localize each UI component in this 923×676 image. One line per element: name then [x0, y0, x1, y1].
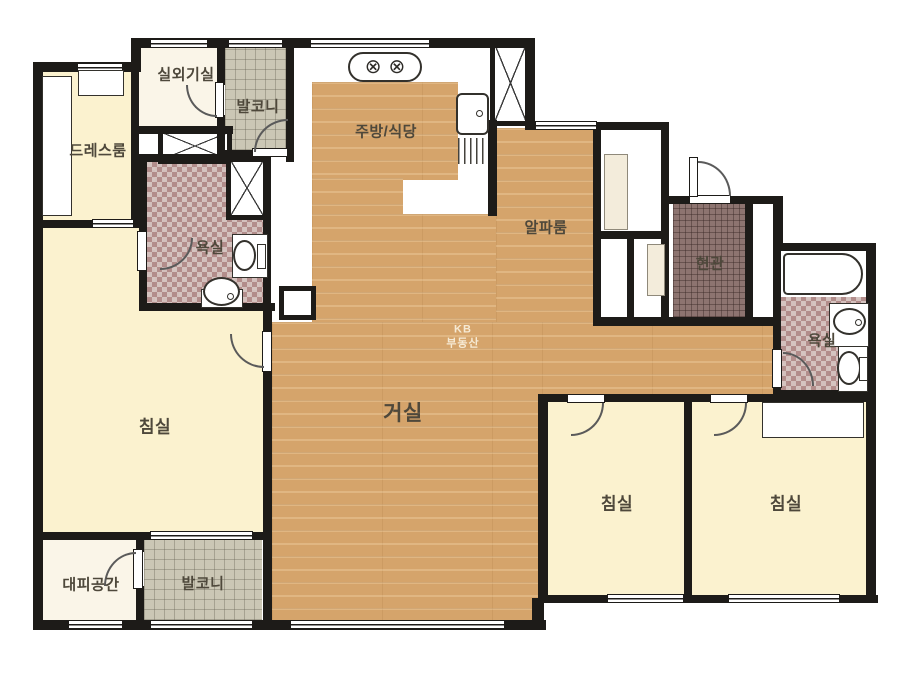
kitchen-wood-floor3 [312, 214, 496, 322]
closet [762, 402, 864, 438]
wall [684, 400, 692, 598]
kb-watermark-line1: KB [446, 323, 479, 337]
window [150, 39, 208, 48]
living-room-floor [272, 322, 542, 620]
window [607, 594, 684, 603]
room-label-kitchen-dining: 주방/식당 [355, 121, 417, 142]
wall [538, 394, 548, 600]
window [290, 620, 505, 629]
wall [525, 38, 535, 130]
room-label-evacuation-space: 대피공간 [62, 574, 119, 595]
window [728, 594, 840, 603]
floor-plan: ⊗ ⊗ 실외기실 발코니 드레스룸 욕실 주방/식당 알파룸 현관 욕실 침실 … [0, 0, 923, 676]
wall [773, 243, 874, 251]
burner-icon: ⊗ [365, 57, 382, 77]
room-label-outdoor-unit: 실외기실 [157, 64, 214, 85]
closet [42, 76, 72, 216]
wall [661, 122, 669, 204]
room-label-living-room: 거실 [383, 397, 423, 427]
wall [488, 120, 497, 216]
faucet-dot-icon [227, 293, 234, 300]
door-leaf [137, 231, 147, 271]
room-label-balcony-top: 발코니 [237, 96, 280, 117]
room-label-bedroom-left: 침실 [139, 413, 171, 438]
toilet-icon [837, 351, 861, 385]
window [150, 620, 253, 629]
window [68, 620, 123, 629]
room-label-bath-left: 욕실 [196, 237, 225, 258]
toilet-icon [233, 240, 256, 271]
wall [136, 586, 144, 622]
kitchen-wood-floor2 [312, 178, 403, 216]
cabinet [647, 244, 665, 296]
wall [139, 154, 147, 234]
window [150, 531, 253, 540]
wall [593, 122, 601, 326]
faucet-dot-icon [855, 319, 862, 326]
kb-watermark: KB 부동산 [446, 323, 479, 351]
washbasin-icon [203, 277, 240, 306]
wall [627, 239, 634, 317]
kitchen-sink-icon [456, 93, 489, 135]
wall [263, 154, 271, 311]
kb-watermark-line2: 부동산 [446, 337, 479, 351]
stove-icon: ⊗ ⊗ [348, 52, 422, 82]
room-label-alpha-room: 알파룸 [525, 217, 568, 238]
wall [532, 598, 544, 630]
duct-shaft-icon [226, 156, 268, 220]
room-label-entrance: 현관 [696, 253, 725, 274]
door-arc [698, 161, 731, 196]
room-label-bedroom-right: 침실 [770, 490, 802, 515]
closet [78, 70, 124, 96]
wall [217, 42, 225, 85]
wall [601, 231, 661, 239]
room-label-bath-right: 욕실 [808, 330, 837, 351]
room-label-balcony-bottom: 발코니 [182, 573, 225, 594]
wall [603, 394, 713, 402]
burner-icon: ⊗ [389, 57, 406, 77]
door-leaf [710, 394, 748, 403]
window [535, 121, 597, 130]
window [228, 39, 283, 48]
room-label-dress-room: 드레스룸 [69, 140, 126, 161]
wall [263, 370, 272, 620]
sliding-door [92, 219, 134, 228]
window [310, 39, 430, 48]
fridge-nook [279, 286, 316, 320]
bathtub-icon [783, 253, 863, 295]
faucet-dot-icon [476, 110, 483, 117]
wall [866, 243, 876, 603]
hallway-floor [542, 322, 773, 398]
room-label-bedroom-center: 침실 [601, 490, 633, 515]
toilet-tank-icon [859, 357, 868, 381]
dish-rack-icon [458, 138, 486, 164]
wall [131, 62, 139, 228]
wall [773, 251, 781, 353]
door-leaf [567, 394, 605, 403]
door-leaf [772, 349, 782, 388]
toilet-tank-icon [257, 244, 266, 269]
wall [745, 204, 753, 319]
cabinet [604, 154, 628, 230]
entrance-side-strip [753, 204, 773, 317]
door-leaf [689, 157, 698, 197]
wall [747, 394, 874, 402]
